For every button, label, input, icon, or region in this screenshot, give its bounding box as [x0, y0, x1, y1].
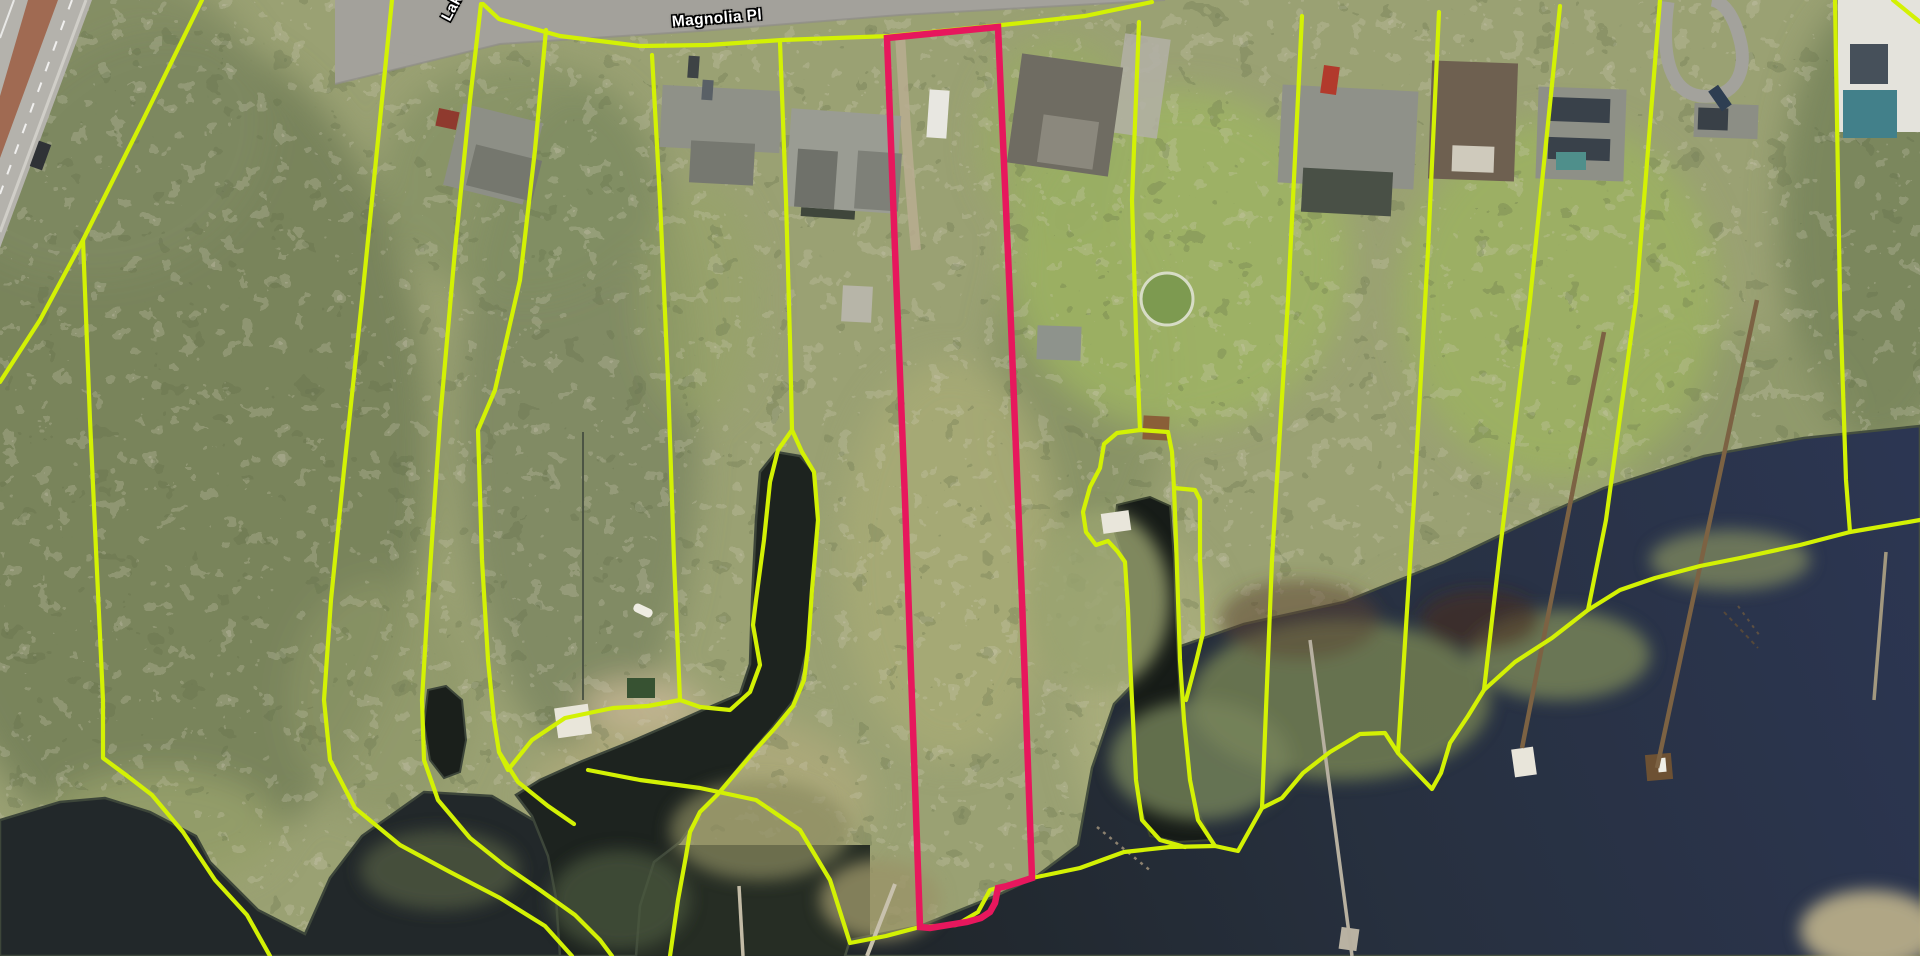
house-roof	[1037, 114, 1099, 169]
swimming-pool	[1556, 152, 1586, 170]
swimming-pool	[1843, 90, 1897, 138]
house-roof	[689, 140, 755, 185]
shed-roof	[627, 678, 655, 698]
rv-trailer	[926, 89, 949, 138]
trampoline	[1141, 273, 1193, 325]
screened-porch	[1301, 168, 1393, 217]
dock-platform	[1101, 510, 1132, 534]
tarp	[1452, 145, 1495, 172]
solar-panels	[1850, 44, 1888, 84]
map-canvas[interactable]: Magnolia PlLak	[0, 0, 1920, 956]
house-roof	[794, 149, 838, 210]
shed-roof	[841, 285, 873, 323]
aerial-map[interactable]	[0, 0, 1920, 956]
car	[701, 80, 713, 101]
solar-panels	[1548, 97, 1611, 123]
solar-panels	[1698, 107, 1729, 130]
car	[687, 56, 700, 79]
pavilion-roof	[1511, 747, 1537, 778]
shed-roof	[1036, 325, 1081, 361]
wood-deck	[1142, 415, 1169, 440]
